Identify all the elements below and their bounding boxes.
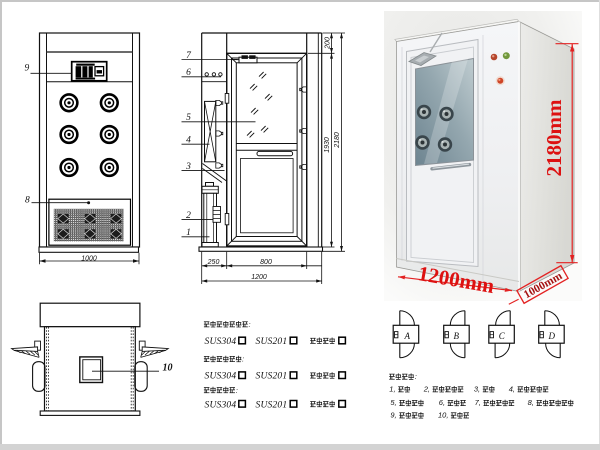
svg-text:3,: 3,: [474, 385, 480, 394]
svg-text:9: 9: [25, 64, 30, 74]
svg-text:B: B: [454, 331, 460, 341]
svg-text:SUS304: SUS304: [205, 372, 237, 382]
svg-text:2180mm: 2180mm: [542, 99, 566, 176]
svg-text:SUS304: SUS304: [205, 400, 237, 410]
svg-text:6,: 6,: [439, 398, 445, 407]
svg-text:10: 10: [163, 363, 173, 374]
svg-text::: :: [415, 372, 417, 381]
svg-text::: :: [236, 386, 238, 395]
svg-text:SUS201: SUS201: [256, 372, 288, 382]
svg-text:SUS201: SUS201: [256, 400, 288, 410]
svg-text:1200: 1200: [251, 274, 267, 281]
svg-text:8: 8: [25, 196, 30, 206]
svg-text:SUS304: SUS304: [205, 337, 237, 347]
svg-text:C: C: [499, 331, 506, 341]
svg-text:4,: 4,: [509, 385, 515, 394]
svg-text:A: A: [404, 331, 411, 341]
svg-text:800: 800: [260, 259, 272, 266]
svg-text:SUS201: SUS201: [256, 337, 288, 347]
svg-text:1930: 1930: [324, 137, 331, 153]
svg-text:200: 200: [324, 37, 331, 50]
svg-text:250: 250: [207, 259, 220, 266]
svg-text:1,: 1,: [389, 385, 395, 394]
svg-text::: :: [242, 355, 244, 364]
svg-text:2180: 2180: [334, 132, 341, 149]
svg-text:8,: 8,: [528, 398, 534, 407]
svg-text:7,: 7,: [475, 398, 481, 407]
svg-text:5,: 5,: [390, 398, 396, 407]
svg-text::: :: [249, 320, 251, 329]
svg-text:D: D: [548, 331, 556, 341]
svg-text:2,: 2,: [423, 385, 430, 394]
svg-text:9,: 9,: [390, 411, 396, 420]
svg-text:10,: 10,: [438, 411, 448, 420]
svg-text:1000: 1000: [81, 256, 97, 263]
